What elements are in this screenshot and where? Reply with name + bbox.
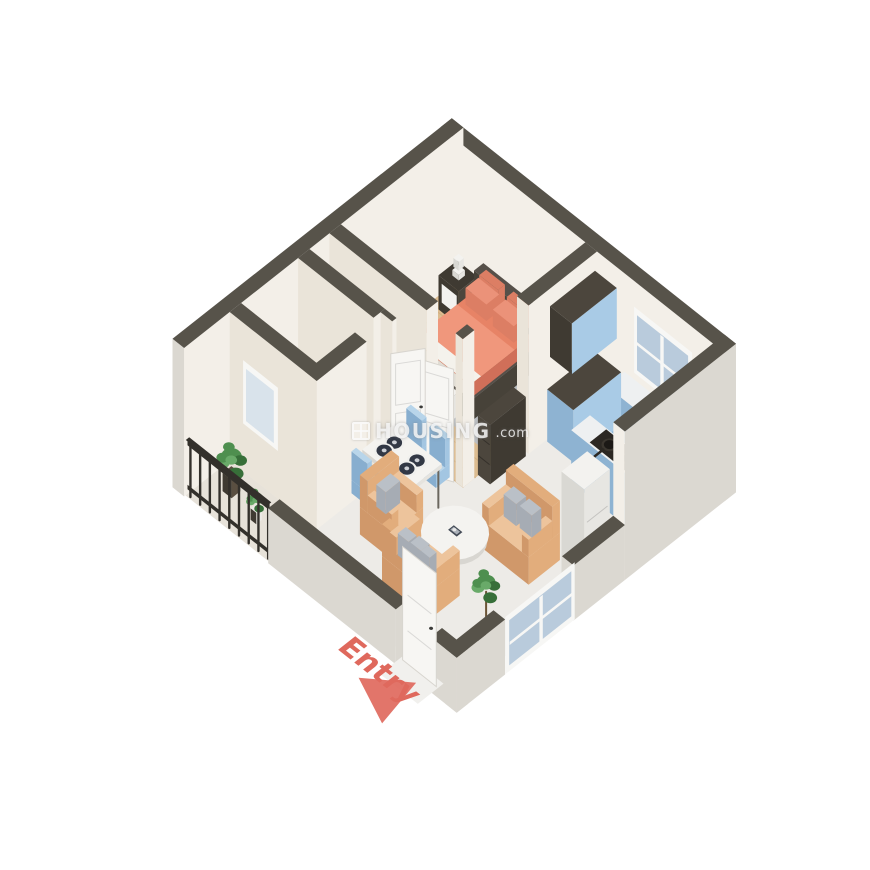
table-lamp	[452, 254, 465, 281]
floorplan-3d-render: Entry HOUSING .com	[0, 0, 870, 870]
floorplan-svg: Entry	[0, 0, 870, 870]
